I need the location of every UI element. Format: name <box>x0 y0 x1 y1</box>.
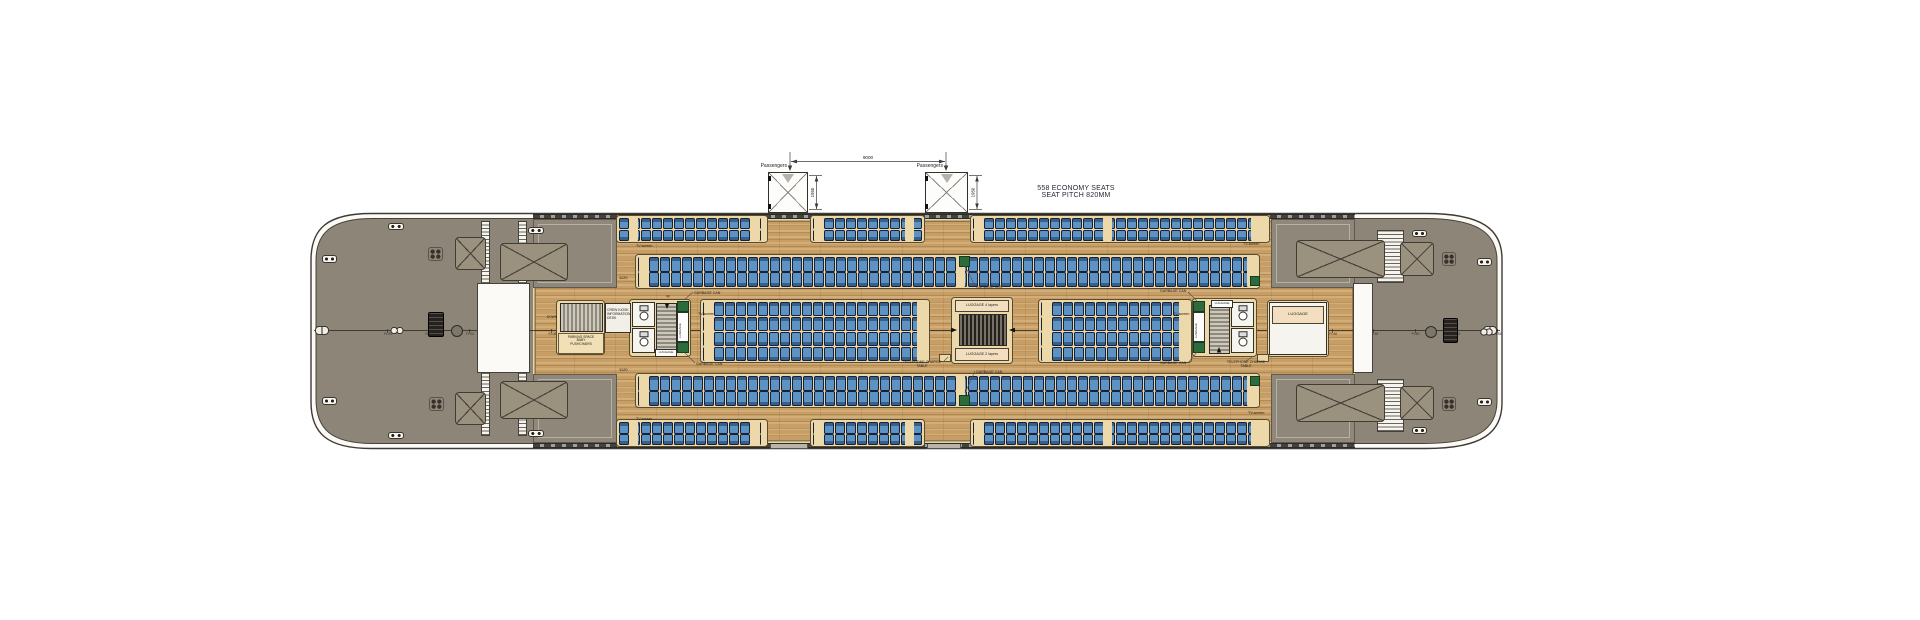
annotation-label: TV-screen <box>636 244 652 248</box>
seat-row-divider <box>1042 301 1051 362</box>
economy-seat <box>715 391 725 405</box>
economy-seat <box>726 376 736 390</box>
economy-seat <box>791 347 801 361</box>
seat-row-divider <box>1251 421 1260 446</box>
economy-seat <box>1085 302 1095 316</box>
economy-seat <box>704 376 714 390</box>
wc-cell <box>632 328 655 353</box>
economy-seat <box>1012 272 1022 286</box>
economy-seat <box>935 272 945 286</box>
staircase <box>656 303 677 351</box>
economy-seat <box>1199 376 1209 390</box>
economy-seat <box>1151 347 1161 361</box>
economy-seat <box>714 317 724 331</box>
economy-seat <box>879 218 889 229</box>
economy-seat <box>715 257 725 271</box>
economy-seat <box>729 434 739 445</box>
economy-seat <box>1127 218 1137 229</box>
economy-seat <box>641 218 651 229</box>
economy-seat <box>1100 257 1110 271</box>
economy-seat <box>1133 376 1143 390</box>
economy-seat <box>1144 391 1154 405</box>
economy-seat <box>1188 257 1198 271</box>
economy-seat <box>1133 272 1143 286</box>
economy-seat <box>913 272 923 286</box>
annotation-label: GARBAGE CAN <box>976 285 1002 289</box>
annotation-label: LUGGAGE <box>1195 323 1199 338</box>
economy-seat <box>1140 302 1150 316</box>
economy-seat <box>1171 422 1181 433</box>
economy-seat <box>1221 272 1231 286</box>
economy-seat <box>1138 422 1148 433</box>
economy-seat <box>726 391 736 405</box>
economy-seat <box>890 218 900 229</box>
economy-seat <box>1078 272 1088 286</box>
economy-seat <box>729 422 739 433</box>
economy-seat <box>984 230 994 241</box>
economy-seat <box>1023 391 1033 405</box>
economy-seat <box>1166 376 1176 390</box>
economy-seat <box>781 272 791 286</box>
annotation-label: 1120 <box>619 276 628 281</box>
economy-seat <box>682 391 692 405</box>
economy-seat <box>1096 332 1106 346</box>
economy-seat <box>1107 347 1117 361</box>
economy-seat <box>1056 391 1066 405</box>
economy-seat <box>663 230 673 241</box>
economy-seat <box>660 257 670 271</box>
economy-seat <box>858 257 868 271</box>
economy-seat <box>984 434 994 445</box>
economy-seat <box>1072 218 1082 229</box>
economy-seat <box>674 422 684 433</box>
annotation-label: TELEPHONE CHARGE TABLE <box>898 360 946 368</box>
economy-seat <box>1039 230 1049 241</box>
economy-seat <box>1006 218 1016 229</box>
economy-seat <box>1193 422 1203 433</box>
economy-seat <box>1160 434 1170 445</box>
economy-seat <box>1160 218 1170 229</box>
economy-seat <box>1144 257 1154 271</box>
seat-row-divider <box>704 301 713 362</box>
seat-count-title: 558 ECONOMY SEATS SEAT PITCH 820MM <box>996 185 1156 199</box>
toilet-icon <box>1238 338 1247 347</box>
economy-seat <box>880 391 890 405</box>
economy-seat <box>696 422 706 433</box>
economy-seat <box>1133 391 1143 405</box>
economy-seat <box>1074 332 1084 346</box>
boarding-threshold <box>927 444 961 449</box>
economy-seat <box>619 230 629 241</box>
economy-seat <box>835 434 845 445</box>
economy-seat <box>1232 257 1242 271</box>
economy-seat <box>674 434 684 445</box>
economy-seat <box>1052 302 1062 316</box>
annotation-label: up <box>666 295 670 299</box>
economy-seat <box>1061 422 1071 433</box>
deck-hatch <box>455 237 486 270</box>
economy-seat <box>879 230 889 241</box>
annotation-label: DOWN <box>547 316 557 320</box>
economy-seat <box>868 332 878 346</box>
economy-seat <box>685 218 695 229</box>
deck-hatch <box>1296 240 1385 278</box>
economy-seat <box>1116 434 1126 445</box>
economy-seat <box>857 218 867 229</box>
economy-seat <box>781 391 791 405</box>
economy-seat <box>879 317 889 331</box>
seat-row-divider <box>629 421 638 446</box>
economy-seat <box>1063 332 1073 346</box>
economy-seat <box>1089 272 1099 286</box>
economy-seat <box>1166 257 1176 271</box>
economy-seat <box>1061 230 1071 241</box>
economy-seat <box>1144 272 1154 286</box>
economy-seat <box>674 218 684 229</box>
economy-seat <box>707 218 717 229</box>
economy-seat <box>846 317 856 331</box>
economy-seat <box>847 376 857 390</box>
garbage-can-green <box>677 301 689 312</box>
economy-seat <box>924 376 934 390</box>
economy-seat <box>814 257 824 271</box>
economy-seat <box>748 376 758 390</box>
economy-seat <box>824 230 834 241</box>
economy-seat <box>891 391 901 405</box>
ferry-deck-plan: Fr.00Fr.02Fr.04Fr.06Fr.08Fr.10Fr.12Fr.14… <box>0 0 1920 620</box>
economy-seat <box>769 347 779 361</box>
economy-seat <box>879 434 889 445</box>
economy-seat <box>1138 434 1148 445</box>
economy-seat <box>857 332 867 346</box>
economy-seat <box>1100 376 1110 390</box>
economy-seat <box>770 257 780 271</box>
economy-seat <box>1160 230 1170 241</box>
economy-seat <box>748 272 758 286</box>
economy-seat <box>714 347 724 361</box>
economy-seat <box>990 376 1000 390</box>
economy-seat <box>737 272 747 286</box>
economy-seat <box>1237 434 1247 445</box>
economy-seat <box>649 376 659 390</box>
annotation-label: LUGGAGE <box>1272 312 1324 317</box>
economy-seat <box>1177 391 1187 405</box>
economy-seat <box>781 257 791 271</box>
economy-seat <box>935 376 945 390</box>
seat-row-divider <box>974 421 983 446</box>
toilet-icon <box>1238 312 1247 321</box>
economy-seat <box>1083 230 1093 241</box>
economy-seat <box>671 272 681 286</box>
economy-seat <box>1193 230 1203 241</box>
economy-seat <box>1221 257 1231 271</box>
economy-seat <box>780 332 790 346</box>
mooring-cleat <box>1412 427 1427 434</box>
economy-seat <box>693 272 703 286</box>
economy-seat <box>619 218 629 229</box>
seat-row-divider <box>814 217 823 242</box>
economy-seat <box>1085 347 1095 361</box>
annotation-label: TV-screen <box>1248 411 1264 415</box>
economy-seat <box>1083 422 1093 433</box>
economy-seat <box>836 376 846 390</box>
fairlead <box>315 326 329 335</box>
economy-seat <box>902 272 912 286</box>
economy-seat <box>1017 434 1027 445</box>
economy-seat <box>836 272 846 286</box>
economy-seat <box>792 376 802 390</box>
economy-seat <box>1063 317 1073 331</box>
seat-row-divider <box>1179 301 1188 362</box>
economy-seat <box>1226 434 1236 445</box>
vent-clover <box>1442 397 1456 411</box>
economy-seat <box>1100 391 1110 405</box>
economy-seat <box>715 376 725 390</box>
economy-seat <box>737 376 747 390</box>
economy-seat <box>901 332 911 346</box>
economy-seat <box>652 434 662 445</box>
annotation-label: LUGGAGE 2 layers <box>955 352 1009 356</box>
annotation-label: GARBAGE CAN <box>1160 361 1186 365</box>
economy-seat <box>759 376 769 390</box>
economy-seat <box>1199 391 1209 405</box>
economy-seat <box>890 230 900 241</box>
mooring-cleat <box>528 430 544 437</box>
garbage-can-green <box>1250 276 1260 286</box>
economy-seat <box>1171 230 1181 241</box>
seat-row-divider <box>1103 421 1112 446</box>
deck-hatch <box>1400 242 1434 276</box>
economy-seat <box>792 272 802 286</box>
economy-seat <box>1017 218 1027 229</box>
economy-seat <box>1122 376 1132 390</box>
seat-row-divider <box>629 217 638 242</box>
economy-seat <box>1155 272 1165 286</box>
economy-seat <box>1144 376 1154 390</box>
economy-seat <box>858 391 868 405</box>
economy-seat <box>674 230 684 241</box>
economy-seat <box>1028 218 1038 229</box>
economy-seat <box>890 332 900 346</box>
economy-seat <box>824 332 834 346</box>
economy-seat <box>758 317 768 331</box>
boarding-threshold <box>770 444 808 449</box>
annotation-label: LUGGAGE <box>679 323 683 338</box>
economy-seat <box>846 218 856 229</box>
economy-seat <box>1063 347 1073 361</box>
toilet-tank-icon <box>1238 305 1247 311</box>
economy-seat <box>736 332 746 346</box>
economy-seat <box>824 434 834 445</box>
economy-seat <box>868 302 878 316</box>
gangway-tower <box>925 172 968 213</box>
toilet-icon <box>639 312 648 321</box>
ramp-band <box>1353 283 1373 373</box>
economy-seat <box>792 257 802 271</box>
economy-seat <box>1149 422 1159 433</box>
economy-seat <box>1083 218 1093 229</box>
economy-seat <box>825 272 835 286</box>
economy-seat <box>780 317 790 331</box>
economy-seat <box>1089 257 1099 271</box>
annotation-label: TV-screen <box>698 312 714 316</box>
economy-seat <box>1039 422 1049 433</box>
economy-seat <box>1149 434 1159 445</box>
economy-seat <box>747 347 757 361</box>
economy-seat <box>1063 302 1073 316</box>
economy-seat <box>891 376 901 390</box>
economy-seat <box>685 422 695 433</box>
economy-seat <box>726 272 736 286</box>
seat-row-divider <box>814 421 823 446</box>
economy-seat <box>924 391 934 405</box>
economy-seat <box>857 347 867 361</box>
economy-seat <box>1067 376 1077 390</box>
economy-seat <box>824 317 834 331</box>
economy-seat <box>641 434 651 445</box>
economy-seat <box>1171 218 1181 229</box>
economy-seat <box>1028 422 1038 433</box>
economy-seat <box>1210 376 1220 390</box>
economy-seat <box>663 218 673 229</box>
economy-seat <box>890 347 900 361</box>
economy-seat <box>696 218 706 229</box>
mooring-cleat <box>322 255 337 263</box>
economy-seat <box>1056 376 1066 390</box>
seat-pitch-line: SEAT PITCH 820MM <box>996 192 1156 199</box>
economy-seat <box>1111 257 1121 271</box>
platform-endcap <box>923 217 925 241</box>
economy-seat <box>858 272 868 286</box>
economy-seat <box>879 332 889 346</box>
bollard-pair <box>390 326 404 335</box>
economy-seat <box>1067 391 1077 405</box>
economy-seat <box>1182 434 1192 445</box>
economy-seat <box>1193 218 1203 229</box>
economy-seat <box>671 391 681 405</box>
economy-seat <box>847 391 857 405</box>
economy-seat <box>1078 391 1088 405</box>
economy-seat <box>1226 218 1236 229</box>
seat-row-divider <box>974 217 983 242</box>
economy-seat <box>758 332 768 346</box>
seat-row-divider <box>639 256 648 287</box>
economy-seat <box>913 391 923 405</box>
economy-seat <box>824 302 834 316</box>
plan-root: Fr.00Fr.02Fr.04Fr.06Fr.08Fr.10Fr.12Fr.14… <box>0 0 1920 620</box>
seat-row-divider <box>1103 217 1112 242</box>
platform-endcap <box>1268 422 1270 446</box>
economy-seat <box>707 434 717 445</box>
economy-seat <box>707 230 717 241</box>
economy-seat <box>1155 376 1165 390</box>
economy-seat <box>1162 317 1172 331</box>
economy-seat <box>901 302 911 316</box>
economy-seat <box>868 317 878 331</box>
annotation-label: TV-screen <box>636 417 652 421</box>
deck-hatch <box>500 243 568 281</box>
economy-seat <box>685 434 695 445</box>
economy-seat <box>663 434 673 445</box>
economy-seat <box>1177 257 1187 271</box>
economy-seat <box>1056 272 1066 286</box>
economy-seat <box>857 230 867 241</box>
economy-seat <box>946 376 956 390</box>
economy-seat <box>1215 434 1225 445</box>
wc-cell <box>1231 328 1254 353</box>
economy-seat <box>946 257 956 271</box>
economy-seat <box>747 332 757 346</box>
economy-seat <box>1034 257 1044 271</box>
garbage-can-green <box>959 256 970 267</box>
garbage-can-green <box>1250 376 1260 386</box>
economy-seat <box>693 376 703 390</box>
economy-seat <box>1096 317 1106 331</box>
economy-seat <box>671 257 681 271</box>
economy-seat <box>1162 347 1172 361</box>
economy-seat <box>979 376 989 390</box>
economy-seat <box>1023 376 1033 390</box>
seat-row-divider <box>1251 217 1260 242</box>
economy-seat <box>814 272 824 286</box>
economy-seat <box>869 376 879 390</box>
bollard-pair <box>1480 328 1493 336</box>
economy-seat <box>1072 230 1082 241</box>
economy-seat <box>995 230 1005 241</box>
economy-seat <box>803 391 813 405</box>
economy-seat <box>814 376 824 390</box>
economy-seat <box>1074 347 1084 361</box>
economy-seat <box>1067 257 1077 271</box>
economy-seat <box>836 257 846 271</box>
economy-seat <box>1151 332 1161 346</box>
economy-seat <box>984 218 994 229</box>
platform-endcap <box>1268 217 1270 241</box>
economy-seat <box>1210 257 1220 271</box>
economy-seat <box>913 257 923 271</box>
economy-seat <box>1226 230 1236 241</box>
economy-seat <box>714 332 724 346</box>
economy-seat <box>1155 257 1165 271</box>
economy-seat <box>979 391 989 405</box>
economy-seat <box>1199 257 1209 271</box>
economy-seat <box>880 272 890 286</box>
annotation-label: TELEPHONE CHARGE TABLE <box>1222 360 1270 368</box>
garbage-can-green <box>1193 342 1205 353</box>
seat-row-divider <box>751 421 760 446</box>
economy-seat <box>1151 317 1161 331</box>
economy-seat <box>1039 434 1049 445</box>
economy-seat <box>1151 302 1161 316</box>
economy-seat <box>1188 376 1198 390</box>
economy-seat <box>660 272 670 286</box>
economy-seat <box>1012 257 1022 271</box>
economy-seat <box>1052 332 1062 346</box>
economy-seat <box>780 347 790 361</box>
platform-endcap <box>923 422 925 446</box>
economy-seat <box>846 332 856 346</box>
economy-seat <box>1215 218 1225 229</box>
door-hinge-mark <box>768 204 771 209</box>
toilet-tank-icon <box>639 305 648 311</box>
door-hinge-mark <box>768 176 771 181</box>
economy-seat <box>1107 302 1117 316</box>
economy-seat <box>1204 230 1214 241</box>
economy-seat <box>748 391 758 405</box>
toilet-icon <box>639 338 648 347</box>
economy-seat <box>995 422 1005 433</box>
economy-seat <box>868 422 878 433</box>
